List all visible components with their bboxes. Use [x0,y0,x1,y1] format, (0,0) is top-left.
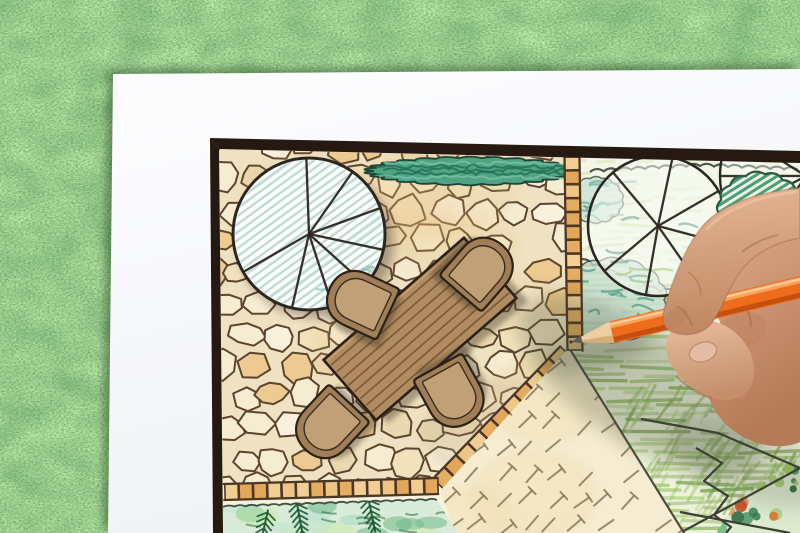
photo-stage [0,0,800,533]
hedge-strip [365,157,576,186]
garden-plan-drawing-photo [0,0,800,533]
